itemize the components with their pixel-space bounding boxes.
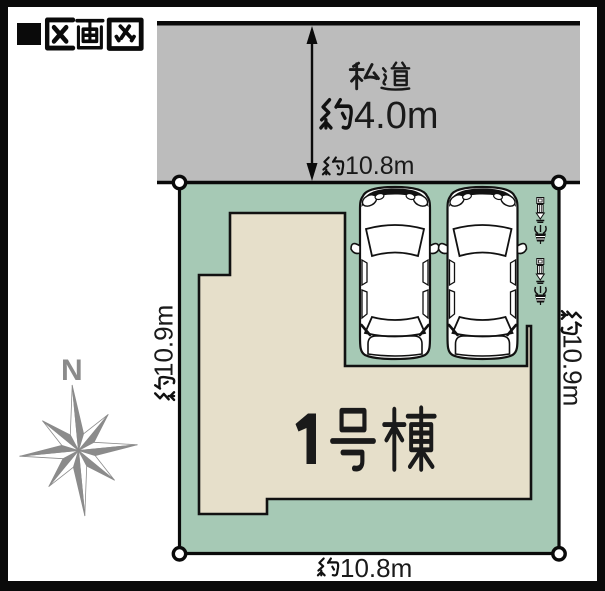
svg-text:10.9m: 10.9m [558, 334, 588, 406]
svg-text:10.8m: 10.8m [340, 553, 412, 583]
svg-text:N: N [61, 354, 83, 387]
svg-text:10.8m: 10.8m [345, 152, 414, 180]
svg-text:10.9m: 10.9m [149, 305, 179, 377]
svg-text:4.0m: 4.0m [354, 95, 438, 137]
